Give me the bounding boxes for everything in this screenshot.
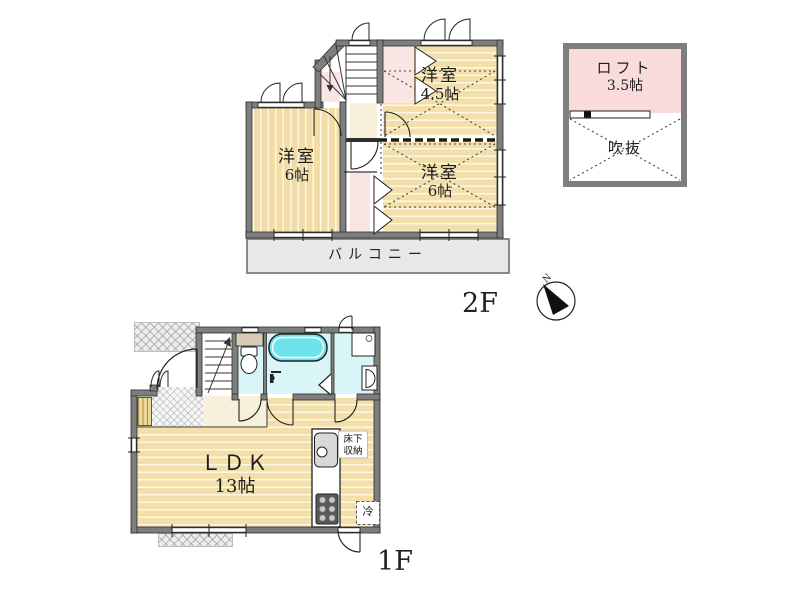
washroom-door-arc [335, 400, 357, 422]
floor-edges-1f [137, 400, 267, 427]
room-2f-northeast-label: 洋室 4.5帖 [394, 66, 486, 104]
hall-door-arc [267, 399, 293, 425]
floor-2f-tag: 2F [450, 288, 510, 320]
loft-label: ロフト 3.5帖 [569, 60, 681, 94]
room-2f-west-label: 洋室 6帖 [251, 147, 343, 185]
floor-1f-tag: 1F [365, 546, 425, 578]
compass-icon: N [537, 272, 575, 320]
fridge-label: 冷 [356, 506, 380, 519]
fixtures-1f [236, 333, 380, 527]
front-door-arc [157, 349, 197, 389]
toilet-counter [236, 333, 263, 346]
room-2f-southeast-label: 洋室 6帖 [394, 163, 486, 201]
floor-storage-label: 床下 収納 [338, 434, 368, 458]
stairs-1f [205, 337, 232, 393]
hall-room-wall [346, 138, 379, 142]
void-label: 吹抜 [569, 140, 681, 158]
toilet-door-arc [239, 399, 261, 421]
bath-folding-door [319, 374, 331, 395]
balcony-label: バルコニー [246, 247, 510, 264]
loft-ladder [570, 111, 650, 118]
ldk-label: ＬＤＫ 13帖 [160, 451, 310, 497]
floor-plan-page: N [0, 0, 800, 600]
toilet-bowl [241, 355, 257, 374]
